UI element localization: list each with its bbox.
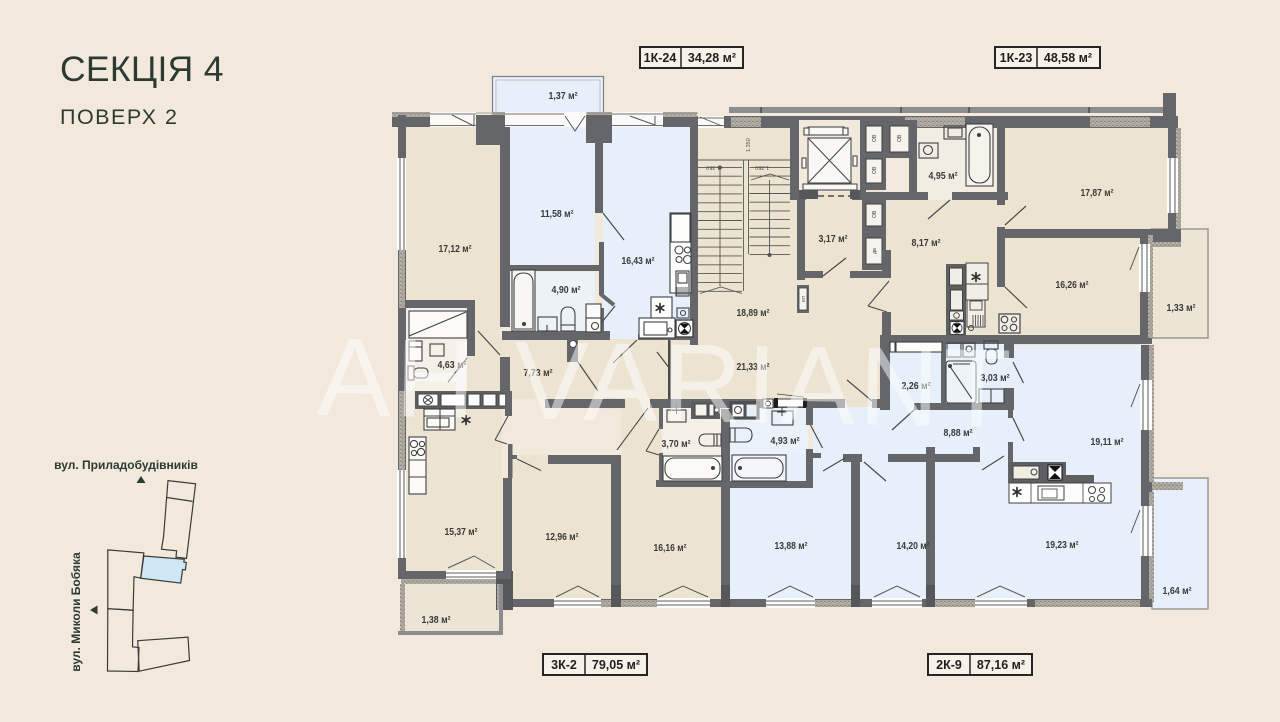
svg-text:4,90 м²: 4,90 м² (552, 285, 582, 296)
svg-text:1,64 м²: 1,64 м² (1163, 586, 1193, 597)
svg-text:1.350: 1.350 (706, 164, 720, 170)
svg-text:87,16 м²: 87,16 м² (977, 658, 1025, 672)
svg-text:1,37 м²: 1,37 м² (549, 91, 579, 102)
svg-text:16,16 м²: 16,16 м² (654, 543, 688, 554)
svg-text:11,58 м²: 11,58 м² (541, 209, 575, 220)
svg-text:17,12 м²: 17,12 м² (439, 244, 473, 255)
svg-text:1,38 м²: 1,38 м² (422, 615, 452, 626)
svg-text:3,17 м²: 3,17 м² (819, 234, 849, 245)
svg-text:16,26 м²: 16,26 м² (1056, 280, 1090, 291)
svg-text:ОВ: ОВ (872, 166, 878, 174)
svg-text:ОВ: ОВ (872, 210, 878, 218)
svg-text:18,89 м²: 18,89 м² (737, 308, 771, 319)
svg-text:АН VARIANT: АН VARIANT (316, 315, 1016, 451)
svg-text:48,58 м²: 48,58 м² (1044, 51, 1092, 65)
svg-text:34,28 м²: 34,28 м² (688, 51, 736, 65)
svg-text:8,17 м²: 8,17 м² (912, 238, 942, 249)
svg-text:1.350: 1.350 (746, 138, 752, 152)
svg-text:ДВ: ДВ (872, 248, 877, 254)
svg-text:ОВ: ОВ (872, 134, 878, 142)
svg-text:вул. Приладобудівників: вул. Приладобудівників (54, 458, 198, 472)
svg-text:4,95 м²: 4,95 м² (929, 171, 959, 182)
svg-text:1К-23: 1К-23 (1000, 51, 1033, 65)
svg-text:1.350: 1.350 (755, 164, 769, 170)
svg-text:ПОВЕРХ 2: ПОВЕРХ 2 (60, 105, 179, 129)
svg-text:17,87 м²: 17,87 м² (1081, 188, 1115, 199)
svg-text:12,96 м²: 12,96 м² (546, 532, 580, 543)
svg-text:ОВ: ОВ (897, 134, 903, 142)
svg-text:1К-24: 1К-24 (644, 51, 677, 65)
svg-text:СЕКЦІЯ 4: СЕКЦІЯ 4 (60, 49, 224, 89)
svg-text:1,33 м²: 1,33 м² (1167, 303, 1197, 314)
svg-text:19,23 м²: 19,23 м² (1046, 540, 1080, 551)
svg-text:2К-9: 2К-9 (936, 658, 962, 672)
svg-text:вул. Миколи Бобяка: вул. Миколи Бобяка (69, 552, 83, 672)
svg-text:15,37 м²: 15,37 м² (445, 527, 479, 538)
svg-text:14,20 м²: 14,20 м² (897, 541, 931, 552)
svg-text:13,88 м²: 13,88 м² (775, 541, 809, 552)
svg-text:ЕП: ЕП (801, 296, 806, 302)
svg-text:16,43 м²: 16,43 м² (622, 256, 656, 267)
svg-text:19,11 м²: 19,11 м² (1091, 437, 1125, 448)
svg-text:79,05 м²: 79,05 м² (592, 658, 640, 672)
svg-text:3К-2: 3К-2 (551, 658, 577, 672)
